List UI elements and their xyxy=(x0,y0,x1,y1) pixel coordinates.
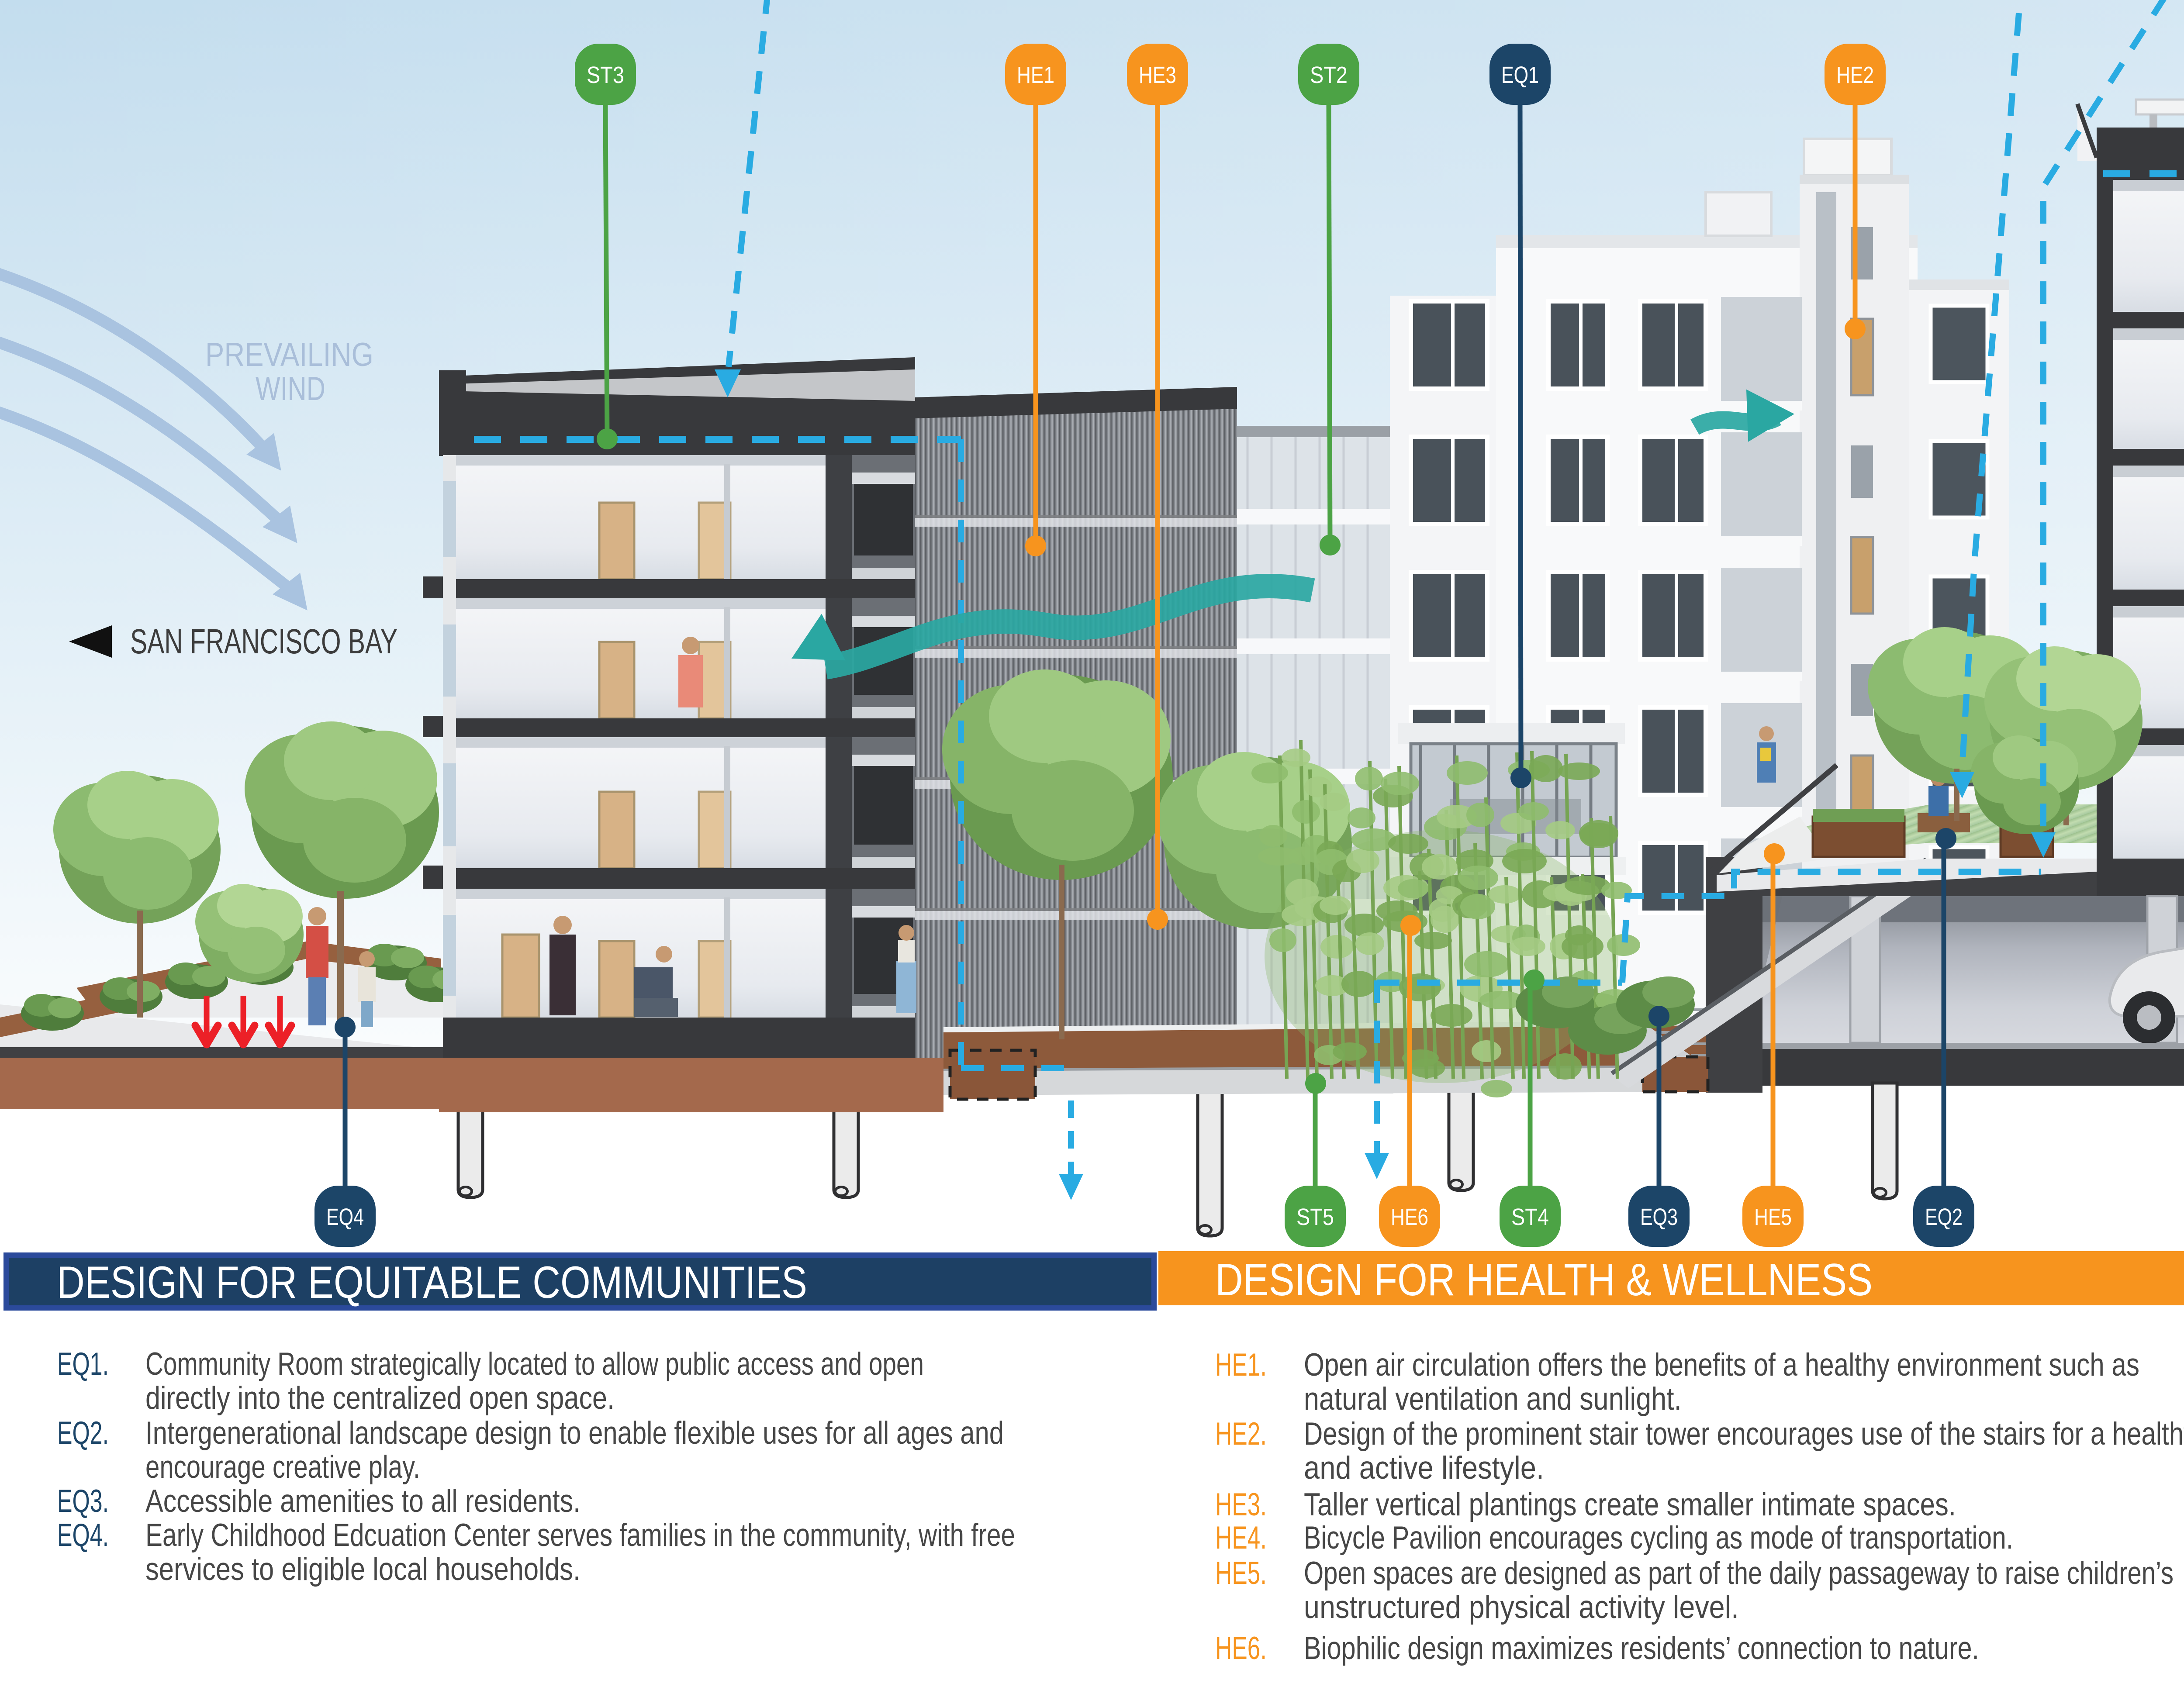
svg-text:HE6: HE6 xyxy=(1391,1204,1428,1230)
svg-text:ST3: ST3 xyxy=(587,62,624,88)
svg-text:HE4.: HE4. xyxy=(1215,1520,1267,1556)
svg-text:HE5.: HE5. xyxy=(1215,1556,1267,1591)
svg-text:Taller vertical plantings crea: Taller vertical plantings create smaller… xyxy=(1304,1487,1956,1522)
svg-text:EQ1: EQ1 xyxy=(1501,62,1539,88)
svg-text:Design of the prominent stair: Design of the prominent stair tower enco… xyxy=(1304,1416,2184,1452)
svg-text:HE3: HE3 xyxy=(1139,62,1176,88)
svg-text:directly into the centralized: directly into the centralized open space… xyxy=(145,1380,615,1416)
svg-text:Open spaces are designed as pa: Open spaces are designed as part of the … xyxy=(1304,1556,2174,1591)
svg-text:DESIGN FOR HEALTH & WELLNESS: DESIGN FOR HEALTH & WELLNESS xyxy=(1215,1255,1873,1305)
svg-text:EQ3: EQ3 xyxy=(1640,1204,1678,1230)
svg-text:unstructured physical activity: unstructured physical activity level. xyxy=(1304,1590,1739,1625)
svg-text:EQ1.: EQ1. xyxy=(57,1346,109,1382)
svg-text:encourage creative play.: encourage creative play. xyxy=(145,1449,420,1485)
svg-text:Biophilic design maximizes res: Biophilic design maximizes residents’ co… xyxy=(1304,1631,1979,1666)
svg-text:Accessible amenities to all re: Accessible amenities to all residents. xyxy=(145,1483,581,1519)
svg-text:EQ2: EQ2 xyxy=(1925,1204,1963,1230)
svg-text:services to eligible local hou: services to eligible local households. xyxy=(145,1552,581,1587)
svg-text:HE2: HE2 xyxy=(1836,62,1874,88)
svg-text:HE2.: HE2. xyxy=(1215,1416,1267,1452)
svg-text:natural ventilation and sunlig: natural ventilation and sunlight. xyxy=(1304,1381,1682,1417)
svg-text:EQ3.: EQ3. xyxy=(57,1483,109,1519)
svg-text:PREVAILING: PREVAILING xyxy=(205,336,373,373)
svg-text:EQ2.: EQ2. xyxy=(57,1415,109,1451)
svg-text:Intergenerational landscape de: Intergenerational landscape design to en… xyxy=(145,1415,1004,1451)
svg-text:HE6.: HE6. xyxy=(1215,1631,1267,1666)
svg-text:Community Room strategically l: Community Room strategically located to … xyxy=(145,1346,924,1382)
svg-text:HE1.: HE1. xyxy=(1215,1347,1267,1383)
svg-text:ST5: ST5 xyxy=(1296,1204,1334,1230)
svg-text:WIND: WIND xyxy=(256,370,325,407)
svg-text:EQ4.: EQ4. xyxy=(57,1518,109,1553)
svg-text:ST2: ST2 xyxy=(1310,62,1348,88)
svg-text:Open air circulation offers th: Open air circulation offers the benefits… xyxy=(1304,1347,2139,1383)
svg-text:HE5: HE5 xyxy=(1754,1204,1792,1230)
svg-text:HE3.: HE3. xyxy=(1215,1487,1267,1522)
svg-text:and active lifestyle.: and active lifestyle. xyxy=(1304,1450,1544,1486)
svg-text:EQ4: EQ4 xyxy=(326,1204,364,1230)
svg-text:SAN FRANCISCO BAY: SAN FRANCISCO BAY xyxy=(130,622,397,661)
svg-text:Early Childhood Edcuation Cent: Early Childhood Edcuation Center serves … xyxy=(145,1518,1015,1553)
svg-text:DESIGN FOR EQUITABLE COMMUNITI: DESIGN FOR EQUITABLE COMMUNITIES xyxy=(57,1257,807,1308)
svg-text:Bicycle Pavilion encourages cy: Bicycle Pavilion encourages cycling as m… xyxy=(1304,1520,2013,1556)
svg-text:ST4: ST4 xyxy=(1511,1204,1549,1230)
svg-text:HE1: HE1 xyxy=(1017,62,1054,88)
